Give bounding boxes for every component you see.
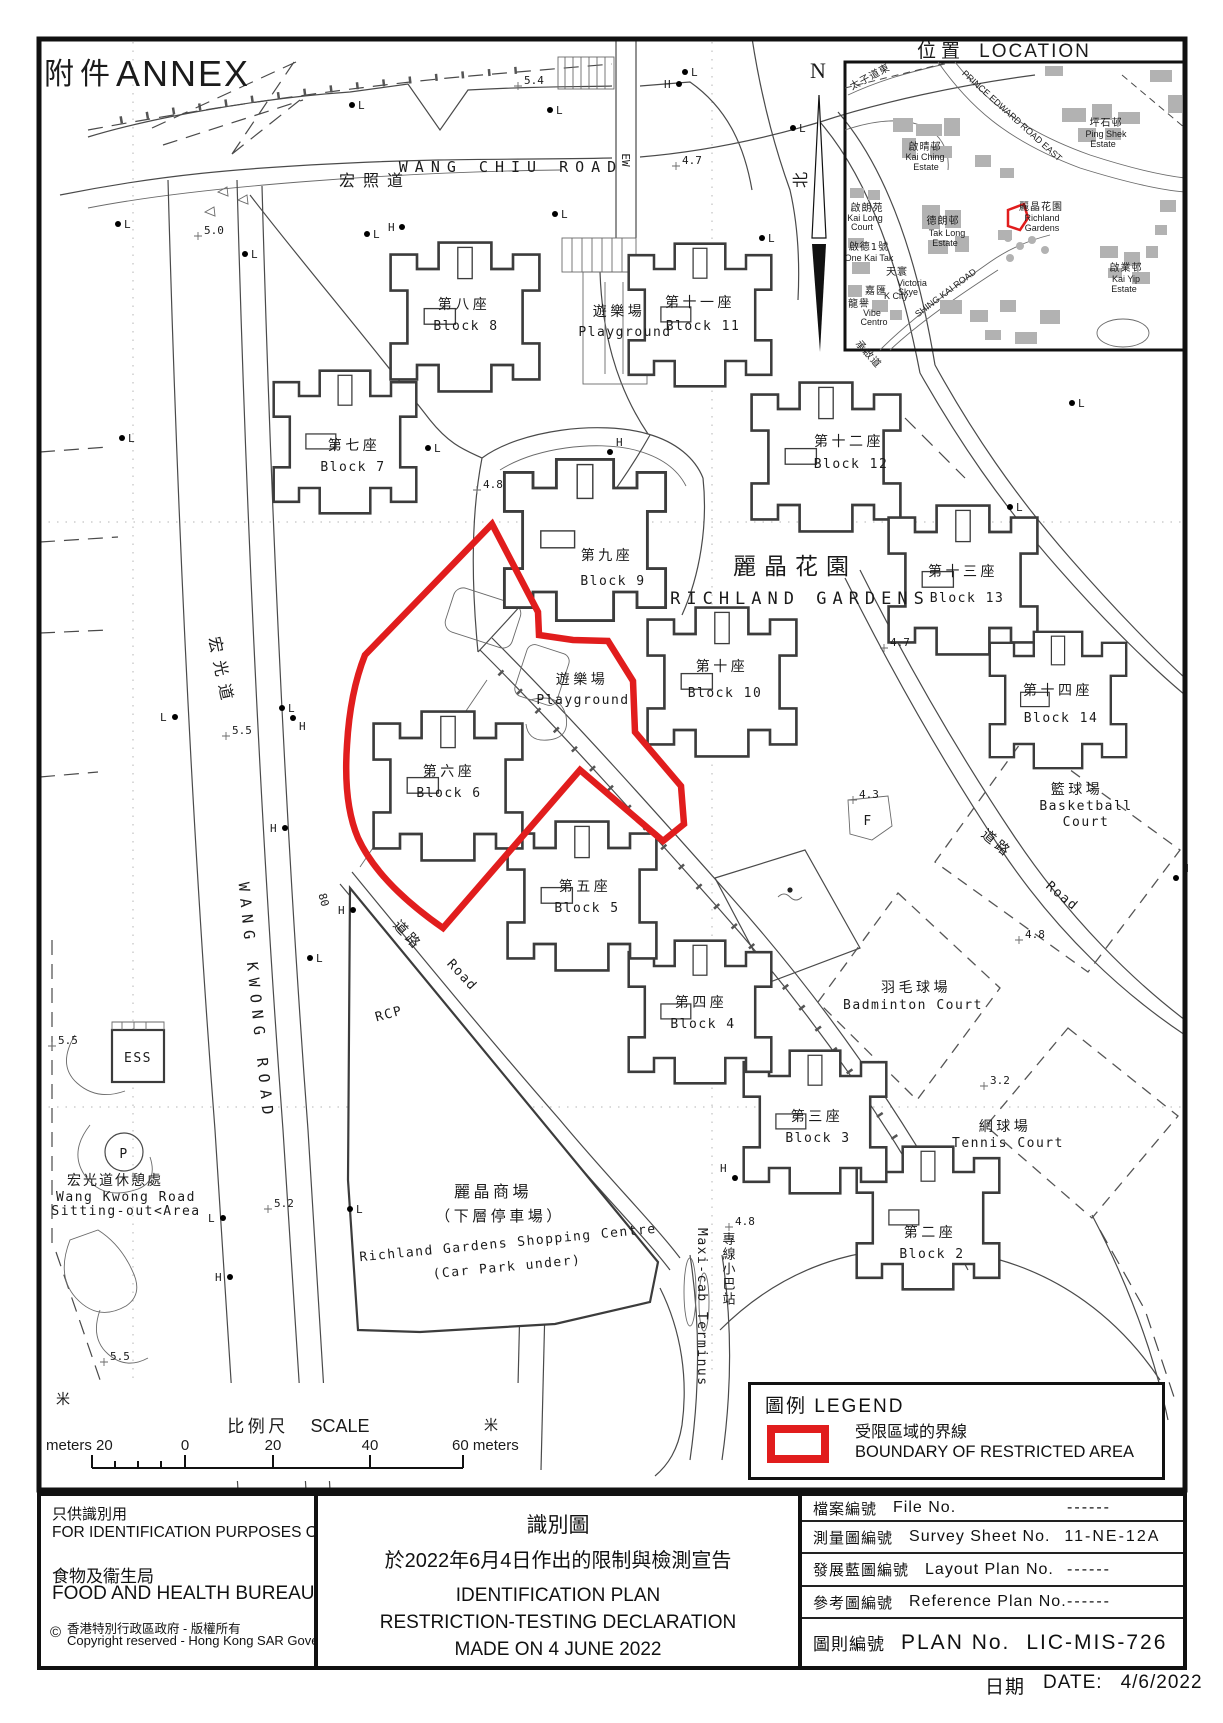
footbridge-ew-label: EW — [619, 153, 632, 167]
block-4-label-zh: 第四座 — [675, 994, 728, 1011]
svg-text:L: L — [251, 248, 258, 261]
estate-name-zh: 麗晶花園 — [733, 554, 857, 580]
inset-buildings — [848, 66, 1182, 344]
plan-subtitle-zh: 於2022年6月4日作出的限制與檢測宣告 — [318, 1544, 798, 1573]
block-2-label-zh: 第二座 — [904, 1224, 957, 1241]
basketball-label-zh: 籃球場 — [1051, 782, 1104, 798]
file-no-en: File No. — [893, 1499, 956, 1517]
inset-kai-yip-en2: Estate — [1111, 284, 1137, 294]
basketball-label-en2: Court — [1063, 815, 1110, 830]
reference-plan-zh: 參考圖編號 — [813, 1592, 893, 1613]
footer-reference-table: 檔案編號 File No. ------ 測量圖編號 Survey Sheet … — [802, 1492, 1187, 1670]
block-12-label-en: Block 12 — [814, 457, 889, 472]
legend-item-en: BOUNDARY OF RESTRICTED AREA — [855, 1443, 1134, 1462]
svg-text:5.2: 5.2 — [274, 1197, 294, 1210]
road-label-zh-2: 道路 — [978, 826, 1015, 861]
maxicab-label-en: Maxi-cab Terminus — [694, 1228, 709, 1387]
footer-id-zh: 只供識別用 — [52, 1503, 127, 1524]
inset-richland-en1: Richland — [1024, 213, 1059, 223]
date-value: 4/6/2022 — [1121, 1672, 1203, 1699]
legend-title-en: LEGEND — [814, 1396, 904, 1417]
block-3-label-zh: 第三座 — [791, 1108, 844, 1125]
scale-20: 20 — [265, 1437, 282, 1454]
inset-kai-yip-zh: 啟業邨 — [1110, 261, 1143, 274]
f-label: F — [863, 814, 872, 829]
scale-40: 40 — [362, 1437, 379, 1454]
block-11-label-zh: 第十一座 — [665, 294, 735, 311]
svg-text:3.2: 3.2 — [990, 1074, 1010, 1087]
north-letter: N — [810, 58, 826, 83]
block-8-label-en: Block 8 — [433, 319, 498, 334]
block-14-label-zh: 第十四座 — [1023, 682, 1093, 699]
layout-plan-en: Layout Plan No. — [925, 1561, 1054, 1579]
survey-sheet-value: 11-NE-12A — [1064, 1528, 1160, 1546]
svg-text:L: L — [556, 104, 563, 117]
parking-label: P — [119, 1147, 128, 1162]
shopping-label-zh1: 麗晶商場 — [454, 1182, 532, 1201]
scale-60-right: 60 meters — [452, 1437, 519, 1454]
legend-title-zh: 圖例 — [765, 1396, 807, 1417]
restricted-boundary-swatch — [767, 1425, 829, 1463]
block-9-label-zh: 第九座 — [581, 547, 634, 564]
table-row-plan-no: 圖則編號 PLAN No. LIC-MIS-726 — [802, 1619, 1183, 1666]
inset-kai-yip-en1: Kai Yip — [1112, 274, 1140, 284]
scale-m-left: 米 — [56, 1392, 74, 1408]
footer-id-en: FOR IDENTIFICATION PURPOSES ONLY — [52, 1524, 347, 1542]
footer-title-box: 識別圖 於2022年6月4日作出的限制與檢測宣告 IDENTIFICATION … — [318, 1492, 802, 1670]
svg-text:L: L — [124, 218, 131, 231]
scale-bar: 米 比例尺 SCALE 米 meters 20 0 20 40 60 meter… — [46, 1383, 530, 1481]
playground-mid-label-zh: 遊樂場 — [556, 671, 609, 688]
badminton-label-en: Badminton Court — [843, 998, 983, 1013]
reference-plan-value: ------ — [1067, 1593, 1111, 1611]
inset-kai-long-en2: Court — [851, 222, 874, 232]
footer-copy-en: Copyright reserved - Hong Kong SAR Gover… — [67, 1633, 359, 1648]
survey-sheet-zh: 測量圖編號 — [813, 1527, 893, 1548]
block-12-label-zh: 第十二座 — [814, 433, 884, 450]
annex-title-en: ANNEX — [116, 53, 250, 94]
svg-text:L: L — [128, 432, 135, 445]
playground-mid-label-en: Playground — [536, 693, 629, 708]
svg-text:5.5: 5.5 — [110, 1350, 130, 1363]
block-11-label-en: Block 11 — [666, 319, 741, 334]
svg-text:L: L — [1016, 501, 1023, 514]
svg-text:H: H — [616, 436, 623, 449]
north-arrow: N 北 — [791, 58, 826, 352]
svg-text:5.5: 5.5 — [58, 1034, 78, 1047]
plan-title-en2: RESTRICTION-TESTING DECLARATION — [318, 1612, 798, 1634]
badminton-label-zh: 羽毛球場 — [881, 980, 951, 996]
wang-kwong-road-label-zh: 宏光道 — [205, 635, 239, 709]
layout-plan-value: ------ — [1067, 1561, 1111, 1579]
ess-label: ESS — [124, 1051, 152, 1066]
block-5-label-zh: 第五座 — [559, 878, 612, 895]
plan-no-en: PLAN No. — [901, 1631, 1010, 1655]
inset-ping-shek-en2: Estate — [1090, 139, 1116, 149]
inset-kai-ching-en1: Kai Ching — [905, 152, 944, 162]
svg-text:L: L — [434, 442, 441, 455]
block-6-label-zh: 第六座 — [423, 763, 476, 780]
table-row-reference-plan: 參考圖編號 Reference Plan No. ------ — [802, 1587, 1183, 1619]
svg-text:H: H — [664, 78, 671, 91]
svg-text:H: H — [215, 1271, 222, 1284]
plan-no-value: LIC-MIS-726 — [1026, 1631, 1167, 1655]
svg-text:L: L — [691, 66, 698, 79]
table-row-layout-plan: 發展藍圖編號 Layout Plan No. ------ — [802, 1554, 1183, 1587]
svg-text:4.7: 4.7 — [682, 154, 702, 167]
legend-title: 圖例 LEGEND — [765, 1391, 904, 1418]
svg-text:L: L — [561, 208, 568, 221]
block-14-label-en: Block 14 — [1024, 711, 1099, 726]
north-zh: 北 — [791, 172, 810, 188]
footer-identification-box: 只供識別用 FOR IDENTIFICATION PURPOSES ONLY 食… — [37, 1492, 318, 1670]
svg-text:4.8: 4.8 — [483, 478, 503, 491]
svg-text:5.4: 5.4 — [524, 74, 544, 87]
svg-text:L: L — [316, 952, 323, 965]
svg-text:4.3: 4.3 — [859, 788, 879, 801]
annex-title-zh: 附件 — [44, 57, 116, 92]
block-4-label-en: Block 4 — [670, 1017, 735, 1032]
svg-text:L: L — [356, 1203, 363, 1216]
maxicab-label-zh: 專線小巴站 — [720, 1232, 736, 1307]
block-7-label-zh: 第七座 — [328, 437, 381, 454]
location-inset: 位置 LOCATION — [845, 40, 1185, 371]
block-10-label-zh: 第十座 — [696, 658, 749, 675]
scale-20-left: meters 20 — [46, 1437, 113, 1454]
road-80-label: 80 — [315, 892, 331, 908]
footer-bureau-en: FOOD AND HEALTH BUREAU — [52, 1583, 315, 1605]
inset-tak-long-en2: Estate — [932, 238, 958, 248]
svg-text:4.7: 4.7 — [890, 636, 910, 649]
inset-one-kai-tak-zh: 啟德1號 — [849, 240, 889, 253]
svg-text:H: H — [388, 221, 395, 234]
inset-richland-en2: Gardens — [1025, 223, 1060, 233]
svg-text:5.5: 5.5 — [232, 724, 252, 737]
inset-richland-zh: 麗晶花園 — [1019, 200, 1063, 213]
plan-title-en3: MADE ON 4 JUNE 2022 — [318, 1639, 798, 1661]
svg-text:L: L — [160, 711, 167, 724]
scale-0: 0 — [181, 1437, 189, 1454]
table-row-file-no: 檔案編號 File No. ------ — [802, 1496, 1183, 1522]
inset-one-kai-tak-en: One Kai Tak — [845, 253, 894, 263]
plan-title-zh: 識別圖 — [318, 1509, 798, 1539]
legend-box: 圖例 LEGEND 受限區域的界線 BOUNDARY OF RESTRICTED… — [748, 1382, 1165, 1480]
block-9-label-en: Block 9 — [580, 574, 645, 589]
svg-text:L: L — [358, 99, 365, 112]
inset-ping-shek-zh: 坪石邨 — [1090, 116, 1123, 129]
tennis-label-zh: 網球場 — [979, 1119, 1032, 1135]
plan-no-zh: 圖則編號 — [813, 1630, 885, 1655]
sitting-out-label-en2: Sitting-out<Area — [51, 1204, 200, 1219]
block-13-label-zh: 第十三座 — [928, 563, 998, 580]
inset-tak-long-zh: 德朗邨 — [927, 214, 960, 227]
inset-ping-shek-en1: Ping Shek — [1085, 129, 1127, 139]
basketball-court-outline — [935, 737, 1180, 972]
wang-chiu-road-label-en: WANG CHIU ROAD — [399, 158, 623, 176]
inset-wing-kai-zh: 承啟道 — [853, 337, 885, 370]
inset-tin-wan-zh: 天寰 — [886, 265, 908, 278]
svg-text:5.0: 5.0 — [204, 224, 224, 237]
inset-tak-long-en1: Tak Long — [929, 228, 966, 238]
svg-text:4.8: 4.8 — [735, 1215, 755, 1228]
inset-kai-ching-en2: Estate — [913, 162, 939, 172]
layout-plan-zh: 發展藍圖編號 — [813, 1559, 909, 1580]
svg-text:L: L — [288, 702, 295, 715]
scale-label-zh: 比例尺 — [227, 1417, 289, 1437]
block-7-label-en: Block 7 — [320, 460, 385, 475]
date-label-zh: 日期 — [985, 1672, 1025, 1699]
swimmer-icon — [778, 894, 802, 900]
copyright-icon: © — [50, 1624, 61, 1641]
svg-text:L: L — [373, 228, 380, 241]
block-13-label-en: Block 13 — [930, 591, 1005, 606]
svg-text:H: H — [270, 822, 277, 835]
svg-text:L: L — [799, 122, 806, 135]
inset-vibe-en2: Centro — [860, 317, 887, 327]
road-label-en-2: Road — [1043, 879, 1081, 914]
survey-sheet-en: Survey Sheet No. — [909, 1528, 1050, 1546]
date-label-en: DATE: — [1043, 1672, 1103, 1699]
shopping-label-zh2: （下層停車場） — [435, 1207, 565, 1225]
svg-text:L: L — [208, 1212, 215, 1225]
block-3-label-en: Block 3 — [785, 1131, 850, 1146]
location-title-en: LOCATION — [979, 41, 1091, 62]
inset-k-city-en: K City — [884, 291, 909, 301]
table-row-survey-sheet: 測量圖編號 Survey Sheet No. 11-NE-12A — [802, 1522, 1183, 1554]
svg-text:H: H — [720, 1162, 727, 1175]
block-5-label-en: Block 5 — [554, 901, 619, 916]
basketball-label-en1: Basketball — [1039, 799, 1132, 814]
scale-m-right: 米 — [484, 1418, 502, 1434]
identification-plan-sheet: 宏照道 WANG CHIU ROAD 宏光道 WANG KWONG ROAD 道… — [0, 0, 1223, 1723]
svg-text:H: H — [299, 720, 306, 733]
svg-text:L: L — [1078, 397, 1085, 410]
location-title-zh: 位置 — [917, 40, 965, 62]
plan-title-en1: IDENTIFICATION PLAN — [318, 1585, 798, 1607]
file-no-zh: 檔案編號 — [813, 1498, 877, 1519]
estate-name-en: RICHLAND GARDENS — [670, 589, 930, 609]
svg-text:4.8: 4.8 — [1025, 928, 1045, 941]
block-6-label-en: Block 6 — [416, 786, 481, 801]
sitting-out-label-en1: Wang Kwong Road — [56, 1190, 196, 1205]
block-10-label-en: Block 10 — [688, 686, 763, 701]
playground-top-label-zh: 遊樂場 — [593, 303, 646, 320]
svg-text:H: H — [338, 904, 345, 917]
wang-kwong-road-label-en: WANG KWONG ROAD — [234, 881, 277, 1122]
sitting-out-label-zh: 宏光道休憩處 — [67, 1172, 163, 1189]
file-no-value: ------ — [1067, 1499, 1111, 1517]
reference-plan-en: Reference Plan No. — [909, 1593, 1067, 1611]
inset-prince-edward-en: PRINCE EDWARD ROAD EAST — [960, 68, 1064, 163]
block-8-label-zh: 第八座 — [438, 296, 491, 313]
block-2-label-en: Block 2 — [899, 1247, 964, 1262]
playground-top-label-en: Playground — [578, 325, 671, 340]
scale-label-en: SCALE — [310, 1416, 369, 1436]
inset-prince-edward-zh: 太子道東 — [847, 61, 892, 93]
legend-item-zh: 受限區域的界線 — [855, 1418, 967, 1442]
tennis-label-en: Tennis Court — [952, 1136, 1064, 1151]
svg-text:L: L — [768, 232, 775, 245]
date-line: 日期 DATE: 4/6/2022 — [985, 1672, 1203, 1699]
